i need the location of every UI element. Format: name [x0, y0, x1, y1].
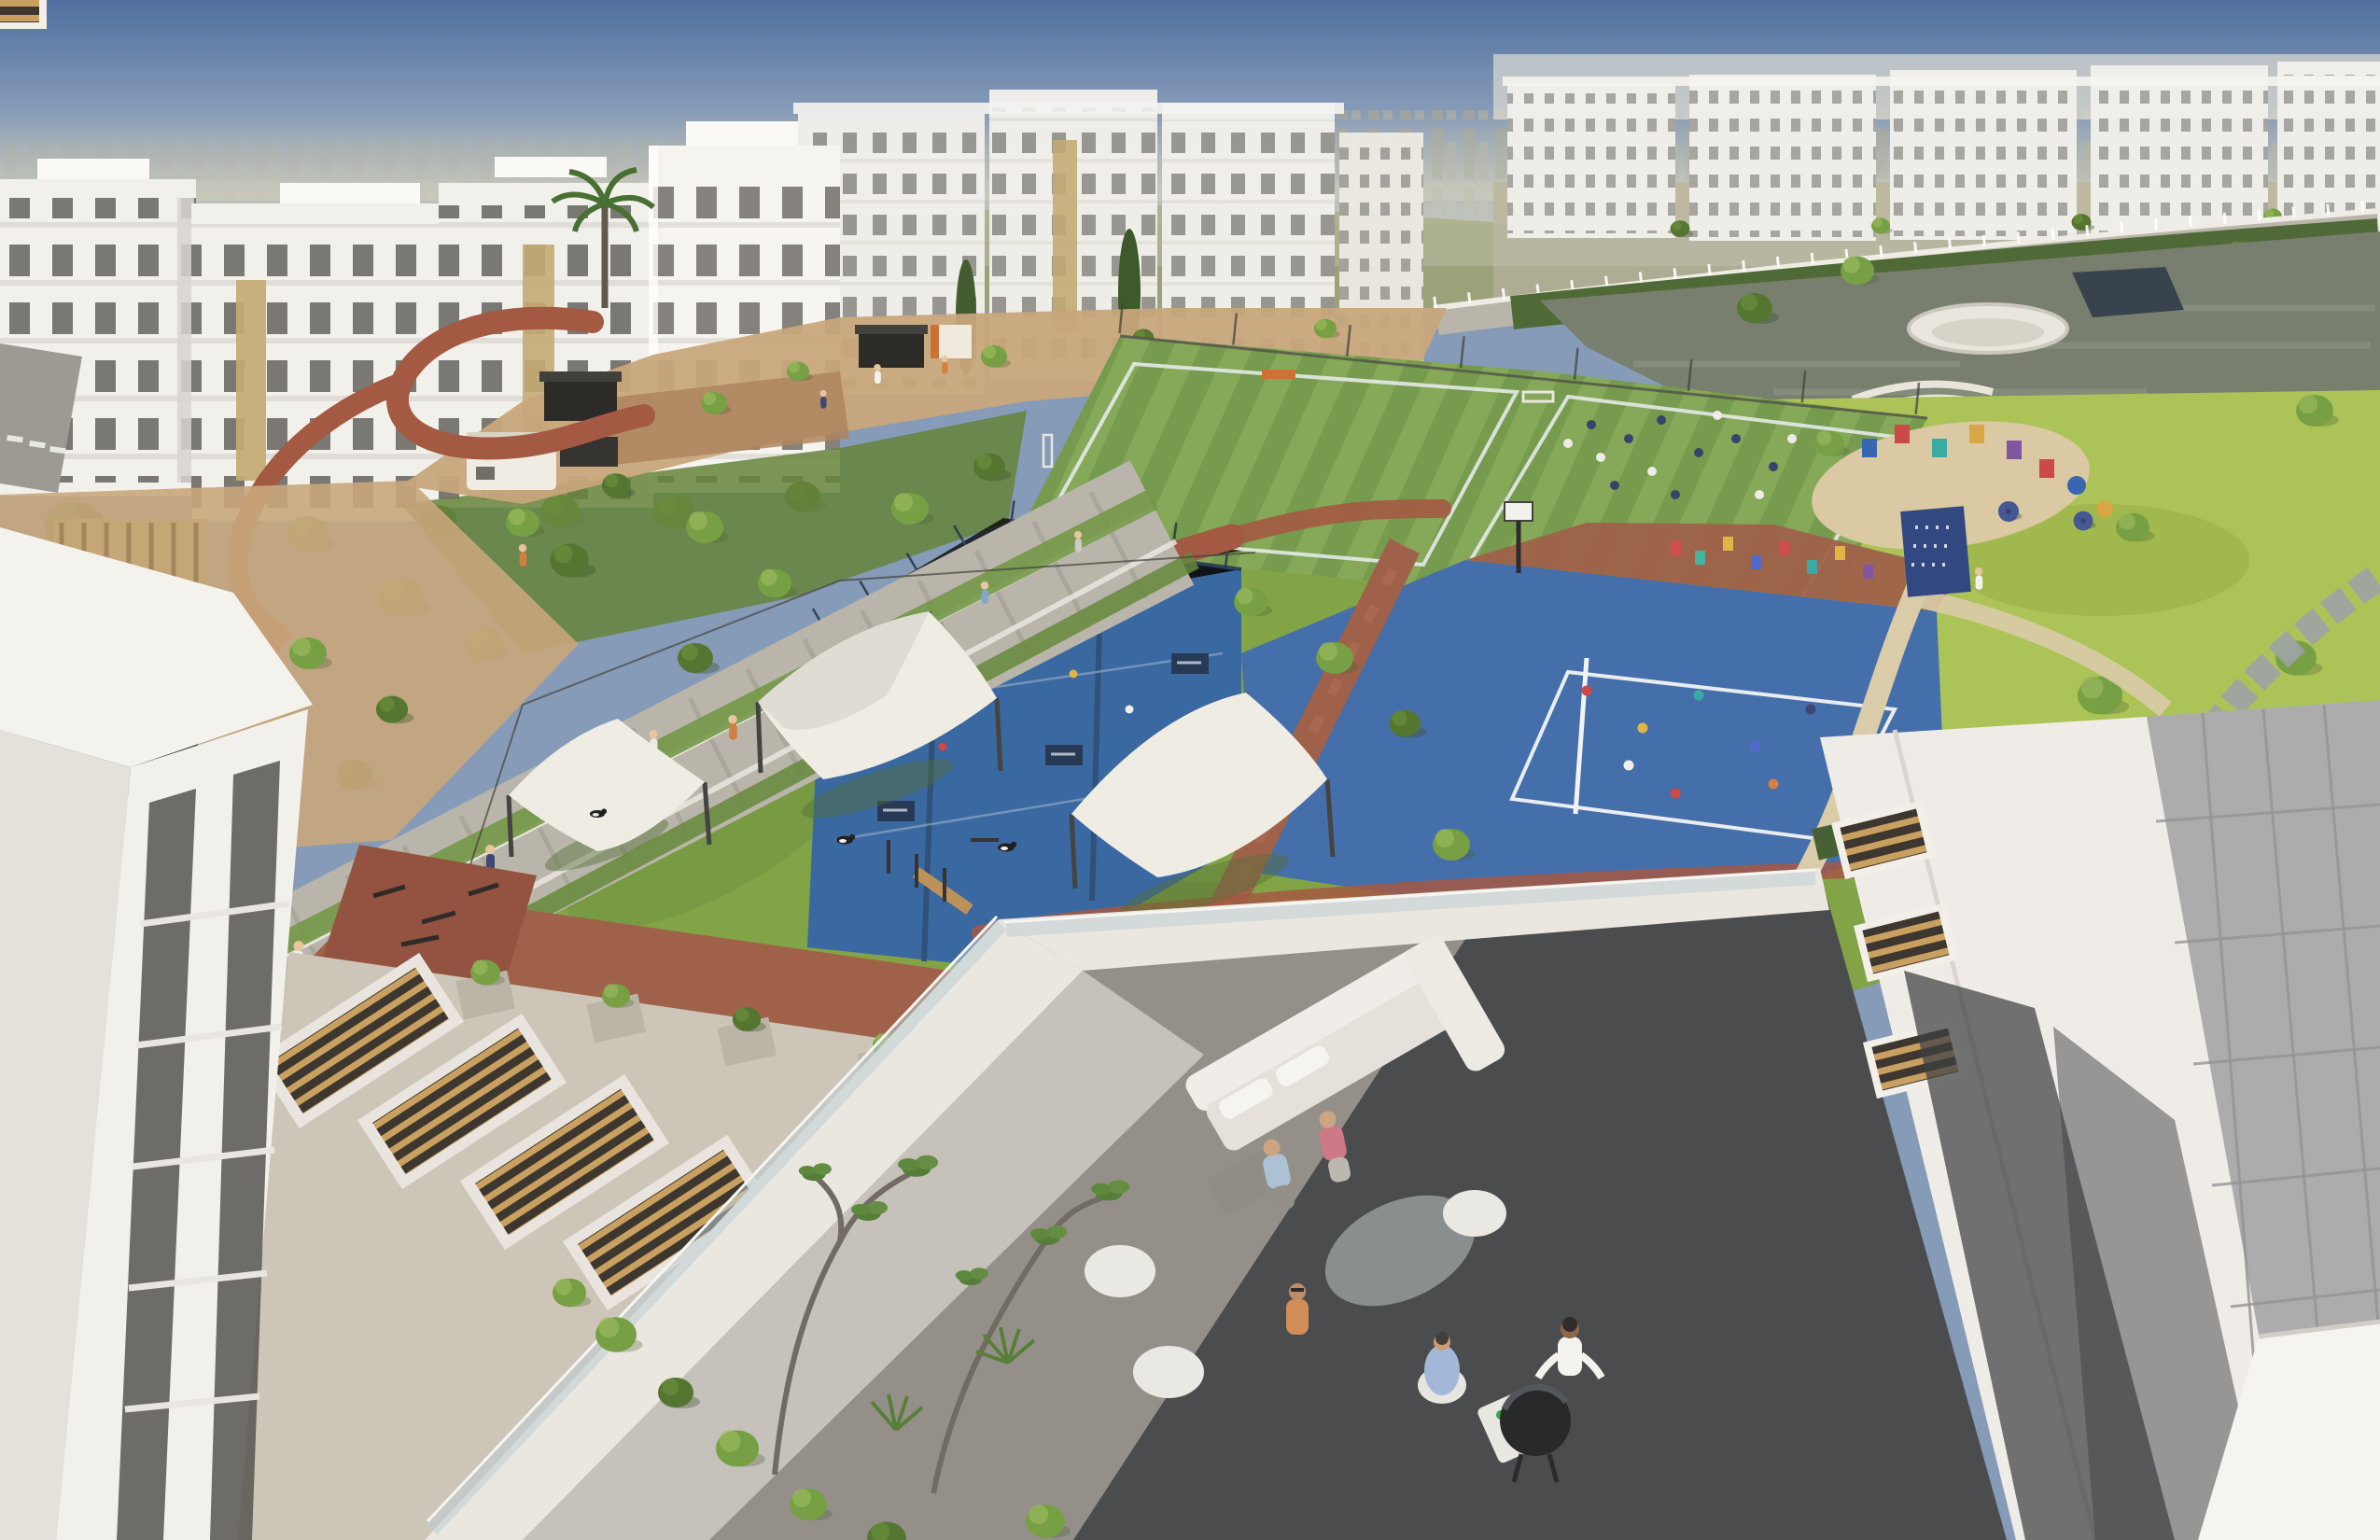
- rendering-viewport: [0, 0, 2380, 1540]
- light-wash: [0, 0, 2380, 1540]
- aerial-compound-rendering: [0, 0, 2380, 1540]
